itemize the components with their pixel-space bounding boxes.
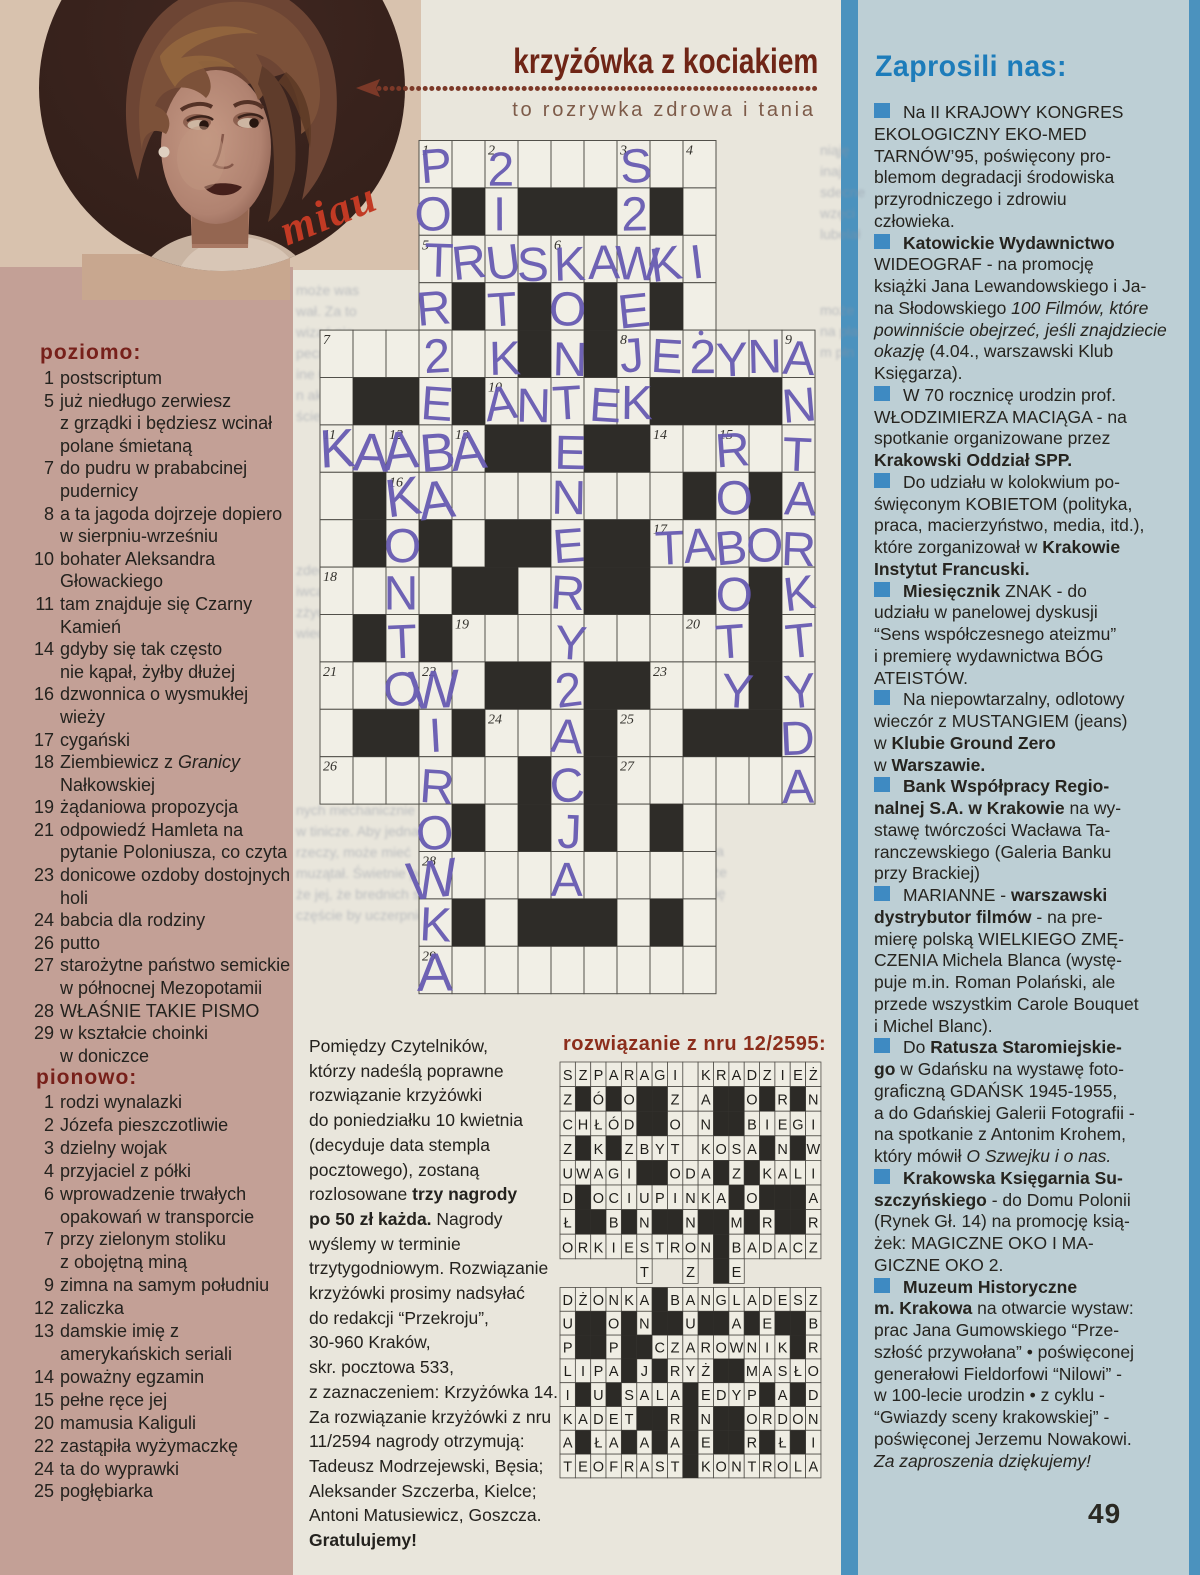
svg-text:A: A <box>609 1436 619 1452</box>
svg-text:O: O <box>808 1364 819 1380</box>
svg-text:A: A <box>716 1191 726 1207</box>
svg-text:L: L <box>794 1167 802 1183</box>
svg-text:I: I <box>627 1191 631 1207</box>
svg-text:K: K <box>701 1191 711 1207</box>
svg-text:Ł: Ł <box>794 1364 802 1380</box>
svg-text:D: D <box>593 1412 603 1428</box>
svg-text:T: T <box>563 1459 572 1475</box>
svg-text:Z: Z <box>686 1265 695 1281</box>
svg-text:R: R <box>747 1436 757 1452</box>
svg-text:R: R <box>670 1364 680 1380</box>
svg-text:Z: Z <box>763 1068 772 1084</box>
svg-text:O: O <box>669 1167 680 1183</box>
svg-text:D: D <box>562 1293 572 1309</box>
svg-text:I: I <box>612 1240 616 1256</box>
svg-text:D: D <box>716 1388 726 1404</box>
svg-text:Z: Z <box>671 1093 680 1109</box>
svg-text:L: L <box>794 1459 802 1475</box>
svg-text:R: R <box>777 1093 787 1109</box>
svg-text:N: N <box>808 1093 818 1109</box>
svg-text:Z: Z <box>732 1167 741 1183</box>
svg-text:A: A <box>640 1459 650 1475</box>
svg-text:A: A <box>563 1436 573 1452</box>
svg-text:Y: Y <box>686 1364 696 1380</box>
svg-text:U: U <box>593 1388 603 1404</box>
svg-text:P: P <box>563 1340 573 1356</box>
svg-text:Z: Z <box>671 1340 680 1356</box>
svg-text:O: O <box>777 1459 788 1475</box>
svg-text:U: U <box>685 1317 695 1333</box>
svg-text:I: I <box>673 1191 677 1207</box>
svg-text:A: A <box>778 1240 788 1256</box>
svg-text:D: D <box>762 1240 772 1256</box>
svg-text:A: A <box>640 1388 650 1404</box>
svg-text:O: O <box>716 1459 727 1475</box>
svg-text:M: M <box>746 1364 758 1380</box>
svg-text:B: B <box>670 1293 680 1309</box>
svg-text:I: I <box>673 1068 677 1084</box>
svg-text:A: A <box>778 1388 788 1404</box>
svg-text:K: K <box>594 1240 604 1256</box>
svg-text:T: T <box>625 1412 634 1428</box>
svg-text:Ż: Ż <box>579 1291 588 1309</box>
svg-text:E: E <box>701 1388 711 1404</box>
svg-text:N: N <box>639 1317 649 1333</box>
svg-text:R: R <box>762 1412 772 1428</box>
svg-text:K: K <box>762 1167 772 1183</box>
svg-text:N: N <box>777 1142 787 1158</box>
svg-text:C: C <box>608 1191 618 1207</box>
svg-text:Ł: Ł <box>779 1436 787 1452</box>
svg-text:N: N <box>608 1293 618 1309</box>
svg-text:Z: Z <box>809 1293 818 1309</box>
svg-text:E: E <box>578 1459 588 1475</box>
svg-text:K: K <box>778 1340 788 1356</box>
svg-text:T: T <box>671 1142 680 1158</box>
svg-text:K: K <box>594 1142 604 1158</box>
svg-text:R: R <box>624 1459 634 1475</box>
svg-text:A: A <box>808 1191 818 1207</box>
svg-text:C: C <box>655 1340 665 1356</box>
svg-text:U: U <box>562 1317 572 1333</box>
svg-text:T: T <box>640 1265 649 1281</box>
svg-text:P: P <box>747 1388 757 1404</box>
svg-text:R: R <box>808 1216 818 1232</box>
svg-text:E: E <box>762 1317 772 1333</box>
svg-text:E: E <box>609 1412 619 1428</box>
svg-text:K: K <box>701 1068 711 1084</box>
svg-text:D: D <box>562 1191 572 1207</box>
svg-text:D: D <box>808 1388 818 1404</box>
svg-text:L: L <box>732 1293 740 1309</box>
svg-text:M: M <box>730 1216 742 1232</box>
svg-text:K: K <box>624 1293 634 1309</box>
svg-text:R: R <box>670 1240 680 1256</box>
svg-text:Z: Z <box>625 1142 634 1158</box>
svg-text:S: S <box>778 1364 788 1380</box>
svg-text:K: K <box>701 1142 711 1158</box>
svg-text:S: S <box>732 1142 742 1158</box>
svg-text:R: R <box>716 1068 726 1084</box>
svg-text:O: O <box>792 1412 803 1428</box>
svg-text:P: P <box>655 1191 665 1207</box>
svg-text:F: F <box>609 1459 618 1475</box>
svg-text:D: D <box>624 1117 634 1133</box>
svg-text:I: I <box>765 1340 769 1356</box>
svg-text:N: N <box>808 1412 818 1428</box>
svg-text:A: A <box>609 1364 619 1380</box>
svg-text:P: P <box>594 1068 604 1084</box>
svg-text:A: A <box>747 1293 757 1309</box>
svg-text:O: O <box>669 1117 680 1133</box>
svg-text:Y: Y <box>655 1142 665 1158</box>
svg-text:A: A <box>670 1436 680 1452</box>
svg-text:Ż: Ż <box>701 1362 710 1380</box>
svg-text:E: E <box>793 1068 803 1084</box>
svg-text:A: A <box>778 1167 788 1183</box>
svg-text:N: N <box>731 1459 741 1475</box>
svg-text:E: E <box>778 1117 788 1133</box>
svg-text:I: I <box>566 1388 570 1404</box>
svg-text:A: A <box>670 1388 680 1404</box>
svg-text:R: R <box>670 1412 680 1428</box>
svg-text:N: N <box>701 1117 711 1133</box>
svg-text:O: O <box>746 1093 757 1109</box>
svg-text:T: T <box>671 1459 680 1475</box>
svg-text:U: U <box>639 1191 649 1207</box>
svg-text:I: I <box>765 1117 769 1133</box>
svg-text:D: D <box>685 1167 695 1183</box>
svg-text:P: P <box>594 1364 604 1380</box>
svg-text:W: W <box>806 1142 820 1158</box>
svg-text:N: N <box>701 1293 711 1309</box>
svg-text:Ó: Ó <box>608 1116 619 1133</box>
svg-text:R: R <box>701 1340 711 1356</box>
svg-text:R: R <box>762 1216 772 1232</box>
svg-text:E: E <box>732 1265 742 1281</box>
svg-text:B: B <box>747 1117 757 1133</box>
svg-text:A: A <box>732 1068 742 1084</box>
svg-text:A: A <box>747 1142 757 1158</box>
svg-text:O: O <box>685 1240 696 1256</box>
svg-text:A: A <box>578 1412 588 1428</box>
svg-text:S: S <box>640 1240 650 1256</box>
svg-text:C: C <box>793 1240 803 1256</box>
svg-text:I: I <box>811 1436 815 1452</box>
svg-text:A: A <box>686 1293 696 1309</box>
svg-text:B: B <box>732 1240 742 1256</box>
svg-text:T: T <box>747 1459 756 1475</box>
svg-text:K: K <box>563 1412 573 1428</box>
svg-text:A: A <box>732 1317 742 1333</box>
svg-text:A: A <box>701 1093 711 1109</box>
svg-text:L: L <box>656 1388 664 1404</box>
svg-text:T: T <box>655 1240 664 1256</box>
svg-text:R: R <box>624 1068 634 1084</box>
svg-text:A: A <box>747 1240 757 1256</box>
svg-text:H: H <box>578 1117 588 1133</box>
svg-text:Ł: Ł <box>564 1216 572 1232</box>
svg-text:A: A <box>640 1293 650 1309</box>
svg-text:O: O <box>623 1093 634 1109</box>
svg-text:Z: Z <box>579 1068 588 1084</box>
svg-text:D: D <box>777 1412 787 1428</box>
svg-text:B: B <box>640 1142 650 1158</box>
svg-text:E: E <box>701 1436 711 1452</box>
svg-text:N: N <box>639 1216 649 1232</box>
svg-text:S: S <box>624 1388 634 1404</box>
svg-text:W: W <box>576 1167 590 1183</box>
svg-text:R: R <box>578 1240 588 1256</box>
svg-text:D: D <box>747 1068 757 1084</box>
svg-text:B: B <box>609 1216 619 1232</box>
svg-text:Y: Y <box>732 1388 742 1404</box>
svg-text:N: N <box>701 1412 711 1428</box>
svg-text:I: I <box>781 1068 785 1084</box>
svg-text:O: O <box>746 1191 757 1207</box>
svg-text:J: J <box>641 1364 648 1380</box>
svg-text:I: I <box>627 1167 631 1183</box>
svg-text:G: G <box>792 1117 803 1133</box>
svg-text:A: A <box>609 1068 619 1084</box>
svg-text:N: N <box>685 1191 695 1207</box>
svg-text:U: U <box>562 1167 572 1183</box>
svg-text:O: O <box>593 1191 604 1207</box>
svg-text:O: O <box>608 1317 619 1333</box>
svg-text:N: N <box>747 1340 757 1356</box>
svg-text:Z: Z <box>563 1093 572 1109</box>
svg-text:A: A <box>686 1340 696 1356</box>
svg-text:S: S <box>563 1068 573 1084</box>
svg-text:R: R <box>808 1340 818 1356</box>
svg-text:I: I <box>811 1117 815 1133</box>
svg-text:A: A <box>640 1068 650 1084</box>
svg-text:I: I <box>811 1167 815 1183</box>
svg-text:A: A <box>640 1436 650 1452</box>
svg-text:C: C <box>562 1117 572 1133</box>
svg-text:O: O <box>716 1340 727 1356</box>
svg-text:O: O <box>746 1412 757 1428</box>
svg-text:N: N <box>701 1240 711 1256</box>
svg-text:A: A <box>701 1167 711 1183</box>
svg-text:O: O <box>562 1240 573 1256</box>
svg-text:A: A <box>762 1364 772 1380</box>
svg-text:Ł: Ł <box>594 1117 602 1133</box>
svg-text:E: E <box>624 1240 634 1256</box>
svg-text:S: S <box>655 1459 665 1475</box>
svg-text:Ó: Ó <box>593 1092 604 1109</box>
svg-text:O: O <box>716 1142 727 1158</box>
svg-text:Z: Z <box>563 1142 572 1158</box>
svg-text:N: N <box>685 1216 695 1232</box>
svg-text:S: S <box>793 1293 803 1309</box>
svg-text:W: W <box>730 1340 744 1356</box>
svg-text:Ł: Ł <box>594 1436 602 1452</box>
svg-text:P: P <box>609 1340 619 1356</box>
svg-text:E: E <box>778 1293 788 1309</box>
svg-text:I: I <box>581 1364 585 1380</box>
svg-text:O: O <box>593 1293 604 1309</box>
svg-text:K: K <box>701 1459 711 1475</box>
svg-text:G: G <box>654 1068 665 1084</box>
svg-text:R: R <box>762 1459 772 1475</box>
svg-text:A: A <box>808 1459 818 1475</box>
svg-text:B: B <box>808 1317 818 1333</box>
svg-text:Z: Z <box>809 1240 818 1256</box>
svg-text:Ż: Ż <box>809 1066 818 1084</box>
svg-text:L: L <box>564 1364 572 1380</box>
svg-text:G: G <box>716 1293 727 1309</box>
svg-text:G: G <box>608 1167 619 1183</box>
svg-text:O: O <box>593 1459 604 1475</box>
svg-text:A: A <box>594 1167 604 1183</box>
svg-text:D: D <box>762 1293 772 1309</box>
